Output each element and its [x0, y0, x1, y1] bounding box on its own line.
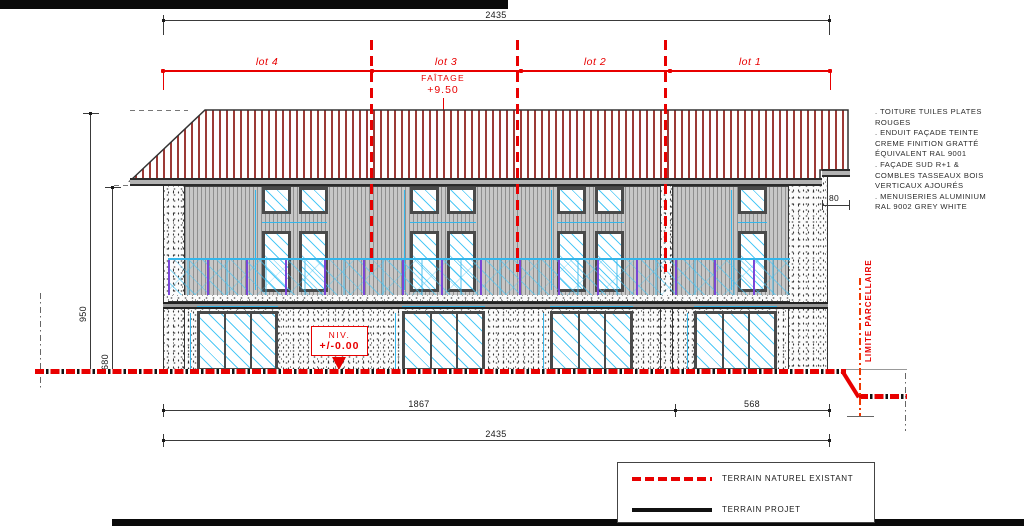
dim-top-tick-right [829, 15, 830, 35]
window-small [262, 187, 291, 214]
dim-950-line [90, 113, 91, 371]
dim-dot [162, 409, 165, 412]
legend-sample-existing [632, 477, 712, 481]
legend-label-project: TERRAIN PROJET [722, 505, 801, 514]
lot-dot [668, 69, 672, 73]
terrain-line-slope [841, 370, 861, 398]
window-dim-mark [738, 222, 767, 223]
dim-top-dot-right [828, 19, 831, 22]
door-dim-mark [687, 313, 688, 370]
note-line: . FAÇADE SUD R+1 & [875, 160, 1023, 171]
left-axis-dashdot [40, 293, 41, 390]
eaves-fascia-right [822, 169, 850, 177]
note-line: . TOITURE TUILES PLATES [875, 107, 1023, 118]
legend-sample-project [632, 508, 712, 512]
sliding-door [402, 311, 485, 371]
window-dim-mark [262, 222, 327, 223]
eaves-fascia-main [130, 178, 822, 186]
window-small [299, 187, 328, 214]
materials-notes: . TOITURE TUILES PLATES ROUGES . ENDUIT … [875, 107, 1023, 213]
door-dim-mark [395, 313, 396, 370]
scan-edge-bottom [112, 519, 1024, 526]
dim-1867-line [163, 410, 830, 411]
parcel-limit-label: LIMITE PARCELLAIRE [864, 250, 873, 362]
lot-dot [519, 69, 523, 73]
dim-80-line [822, 205, 850, 206]
terrain-line-existing [35, 369, 846, 374]
dim-top-dot-left [162, 19, 165, 22]
note-line: VERTICAUX AJOURÉS [875, 181, 1023, 192]
level-marker-box: NIV. +/-0.00 [311, 326, 368, 356]
dim-950-dot-top [89, 112, 92, 115]
window-small [557, 187, 586, 214]
dim-top-label: 2435 [446, 10, 546, 20]
dim-80-tick [822, 200, 823, 210]
dim-1867-label: 1867 [369, 399, 469, 409]
lot-dot [828, 69, 832, 73]
dim-dot [674, 409, 677, 412]
dim-dot [828, 409, 831, 412]
sliding-door [197, 311, 278, 371]
lot-1-label: lot 1 [700, 56, 800, 68]
dim-680-line [112, 187, 113, 371]
right-axis-dashdot [905, 373, 906, 431]
dim-top-tick-left [163, 15, 164, 35]
note-line: RAL 9002 GREY WHITE [875, 202, 1023, 213]
dim-568-label: 568 [702, 399, 802, 409]
door-mullion [604, 314, 606, 368]
lot-2-label: lot 2 [545, 56, 645, 68]
dim-950-label: 950 [78, 278, 88, 322]
dim-80-tick [849, 200, 850, 210]
dim-2435-bottom-label: 2435 [446, 429, 546, 439]
dim-top-line [163, 20, 830, 21]
window-small [738, 187, 767, 214]
door-mullion [224, 314, 226, 368]
note-line: . MENUISERIES ALUMINIUM [875, 192, 1023, 203]
window-small [410, 187, 439, 214]
note-line: ÉQUIVALENT RAL 9001 [875, 149, 1023, 160]
lot-dot [161, 69, 165, 73]
lot-line [163, 70, 831, 72]
lot-4-label: lot 4 [217, 56, 317, 68]
door-dim-mark [543, 313, 544, 370]
door-mullion [748, 314, 750, 368]
sliding-door [694, 311, 777, 371]
window-dim-mark [557, 222, 624, 223]
balcony-floor-strip [168, 295, 790, 302]
door-mullion [722, 314, 724, 368]
lot-3-label: lot 3 [396, 56, 496, 68]
dim-2435-bottom-line [163, 440, 830, 441]
window-dim-mark [410, 222, 476, 223]
terrain-line-lower [859, 394, 907, 399]
balcony-railing [168, 258, 790, 295]
roof [128, 108, 852, 188]
door-dim-mark [402, 306, 485, 307]
lot-boundary-dashed [664, 40, 667, 272]
window-small [447, 187, 476, 214]
legend-label-existing: TERRAIN NATUREL EXISTANT [722, 474, 853, 483]
lot-boundary-dashed [516, 40, 519, 272]
window-small [595, 187, 624, 214]
lot-tick-left [163, 70, 164, 90]
level-label: NIV. [312, 330, 367, 340]
dim-dot [162, 439, 165, 442]
dim-680-dot-top [111, 186, 114, 189]
scan-edge-top [0, 0, 508, 9]
door-mullion [456, 314, 458, 368]
dim-80-label: 80 [824, 193, 844, 203]
level-value: +/-0.00 [312, 340, 367, 352]
note-line: CREME FINITION GRATTÉ [875, 139, 1023, 150]
parcel-limit-line [859, 278, 861, 417]
ridge-level-value: +9.50 [403, 84, 483, 96]
note-line: COMBLES TASSEAUX BOIS [875, 171, 1023, 182]
ridge-label: FAÎTAGE [403, 73, 483, 83]
door-mullion [578, 314, 580, 368]
door-dim-mark [694, 306, 777, 307]
elevation-drawing: 2435 lot 4 lot 3 lot 2 lot 1 FAÎTAGE +9.… [0, 0, 1024, 526]
door-dim-mark [550, 306, 633, 307]
legend-box: TERRAIN NATUREL EXISTANT TERRAIN PROJET [617, 462, 875, 523]
lot-boundary-dashed [370, 40, 373, 272]
dim-680-label: 680 [100, 326, 110, 370]
terrain-gray-continuation [845, 369, 907, 370]
sliding-door [550, 311, 633, 371]
dim-dot [828, 439, 831, 442]
door-mullion [430, 314, 432, 368]
parcel-limit-tick [847, 416, 874, 417]
door-dim-mark [190, 313, 191, 370]
door-mullion [250, 314, 252, 368]
lot-tick-right [830, 70, 831, 90]
note-line: . ENDUIT FAÇADE TEINTE [875, 128, 1023, 139]
door-dim-mark [197, 306, 278, 307]
note-line: ROUGES [875, 118, 1023, 129]
